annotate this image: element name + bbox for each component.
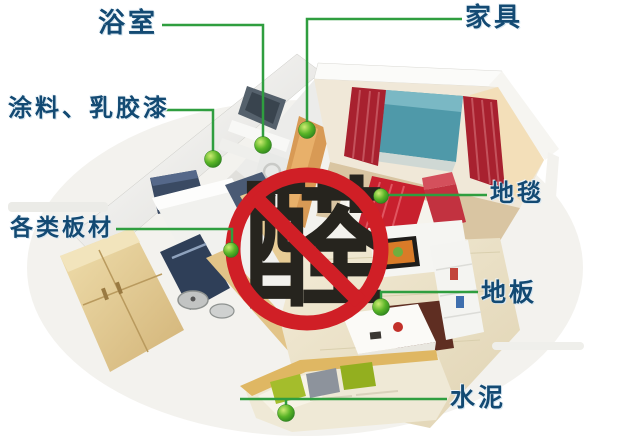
shelf-book-blue [456,296,464,308]
shelf-book-red [450,268,458,280]
watermark-smudge [8,202,108,212]
callout-dot-furniture [299,122,316,139]
green-pillow-2 [340,362,376,390]
cooking-pot-2 [210,304,234,318]
label-carpet: 地毯 [490,180,544,206]
label-paint-latex: 涂料、乳胶漆 [8,95,170,121]
label-cement: 水泥 [450,384,506,412]
label-furniture: 家具 [465,4,523,33]
pot-lid-knob [191,297,196,302]
callout-dot-cement [278,405,295,422]
callout-dot-carpet [374,189,389,204]
callout-dot-paint [205,151,222,168]
label-boards: 各类板材 [10,216,114,241]
watermark-smudge-2 [492,342,584,350]
callout-dot-bathroom [255,137,272,154]
red-fruit-bowl [393,322,403,332]
formaldehyde-sources-infographic: 醛 浴室 家具 涂料、乳胶漆 各类板材 地毯 地板 水泥 [0,0,620,436]
callout-dot-floor [373,299,390,316]
callout-dot-boards [224,243,239,258]
tv-picture-detail [393,247,403,257]
label-bathroom: 浴室 [98,9,158,39]
table-item [370,331,382,339]
label-floor: 地板 [481,279,537,307]
